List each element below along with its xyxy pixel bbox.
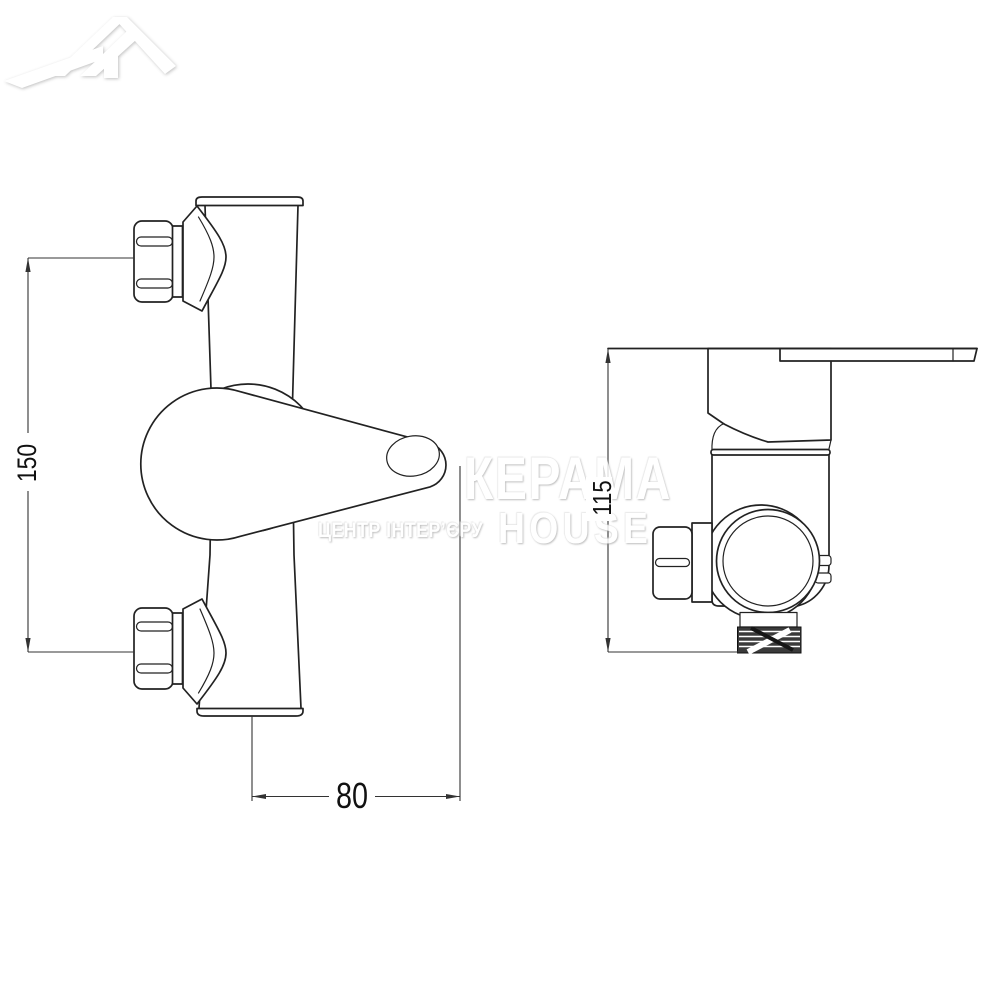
front-view-drawing xyxy=(134,197,446,716)
technical-drawing xyxy=(0,0,1000,1000)
shower-outlet-thread xyxy=(738,613,802,654)
side-inlet-nut xyxy=(653,527,692,599)
diagram-canvas: КЕРАМА HOUSE ЦЕНТР ІНТЕР’ЄРУ 150 80 115 xyxy=(0,0,1000,1000)
top-inlet-nut xyxy=(134,206,226,311)
side-view-drawing xyxy=(608,349,977,654)
mixer-lever-side xyxy=(780,349,977,362)
dimension-150 xyxy=(25,258,134,652)
bottom-inlet-nut xyxy=(134,599,226,704)
diverter-cap xyxy=(717,510,820,613)
side-nut-plate xyxy=(692,523,712,602)
